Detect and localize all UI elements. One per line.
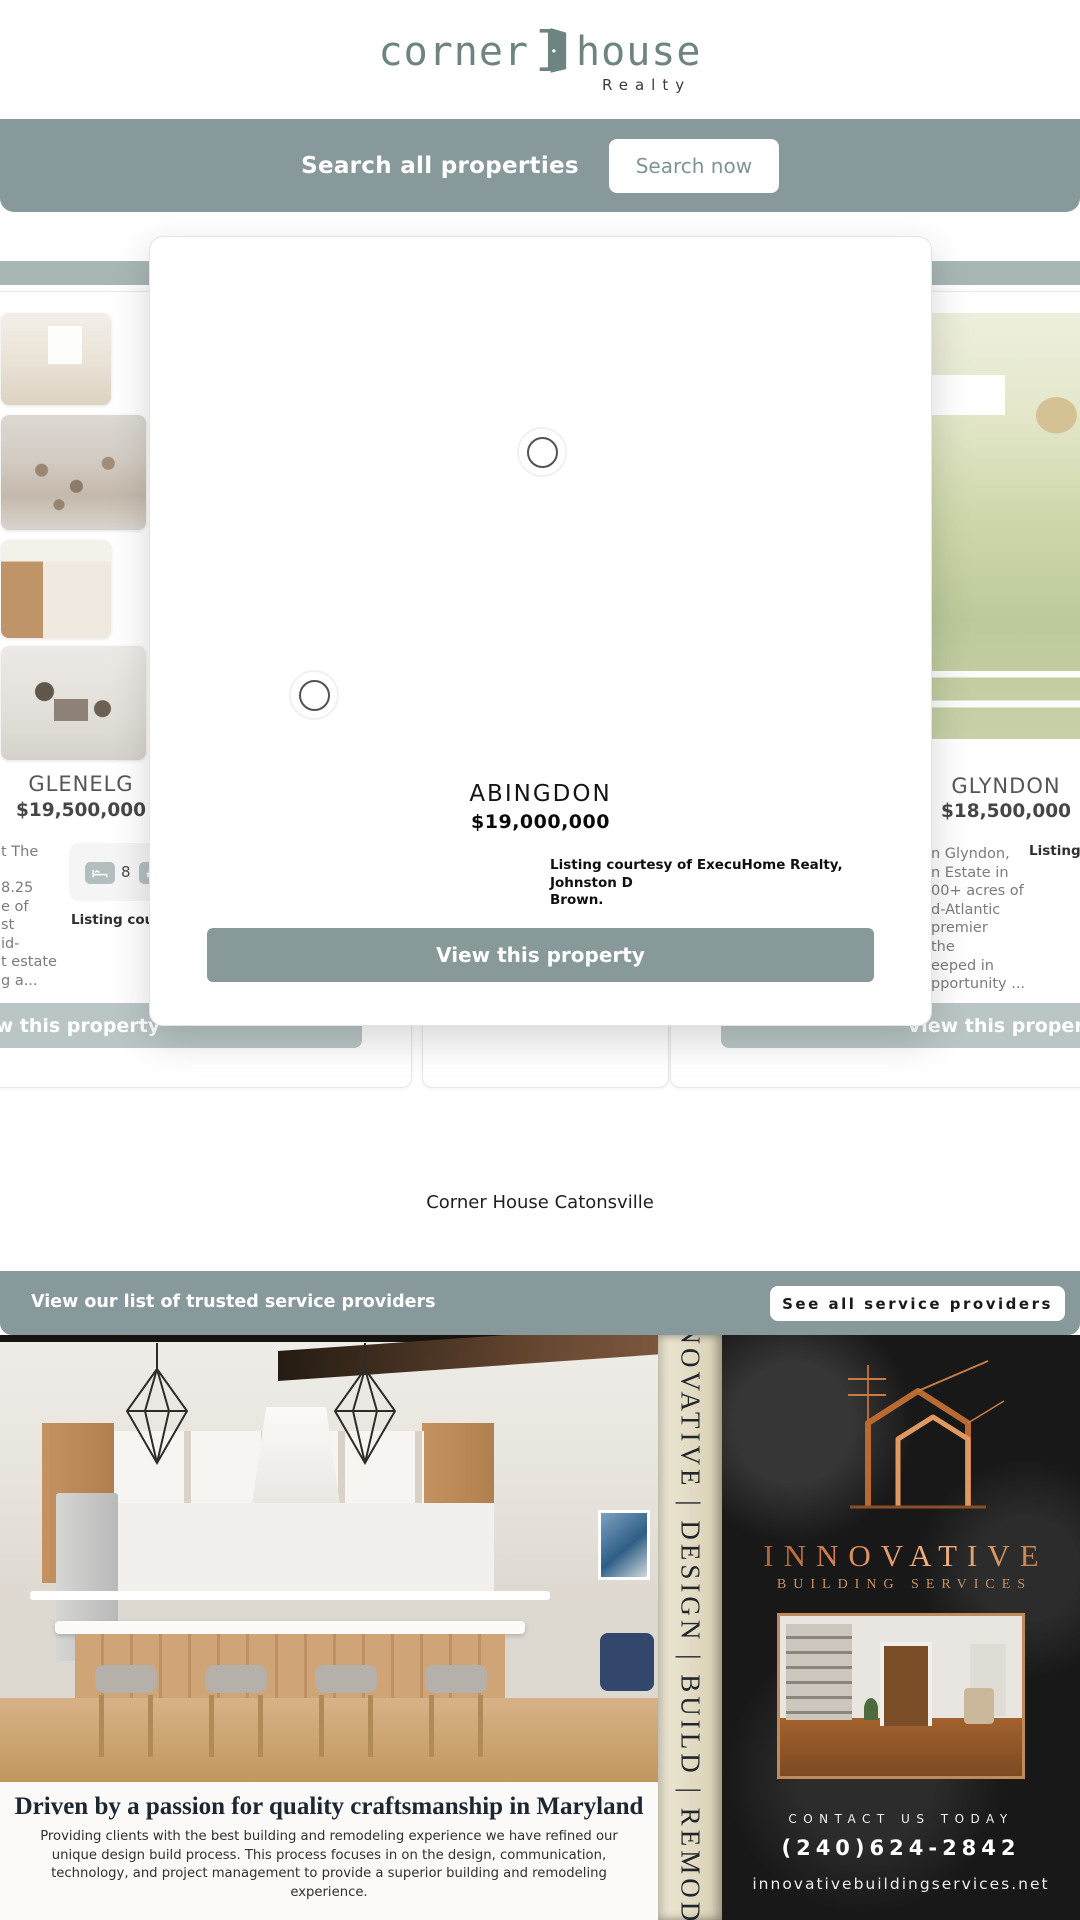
wall-art xyxy=(598,1510,650,1580)
plant xyxy=(864,1698,878,1720)
search-banner-label: Search all properties xyxy=(301,153,579,179)
logo-subtitle: Realty xyxy=(602,76,691,94)
ad-entryway-photo xyxy=(777,1613,1025,1779)
ad-vertical-banner: INNOVATIVE | DESIGN | BUILD | REMODEL xyxy=(658,1335,722,1920)
ad-body-copy: Providing clients with the best building… xyxy=(19,1828,639,1902)
brand-logo[interactable]: corner house xyxy=(0,26,1080,78)
gallery-thumbnail-aerial-winter[interactable] xyxy=(1,415,146,530)
armchair xyxy=(600,1633,654,1691)
property-description: n Glyndon, n Estate in 00+ acres of d-At… xyxy=(931,845,1025,994)
gallery-thumbnail-estate-winter[interactable] xyxy=(1,646,146,760)
see-all-providers-button[interactable]: See all service providers xyxy=(770,1286,1065,1321)
modal-listing-courtesy: Listing courtesy of ExecuHome Realty, Jo… xyxy=(550,857,872,910)
ad-contact-label: CONTACT US TODAY xyxy=(722,1812,1080,1826)
site-header: corner house Realty xyxy=(0,0,1080,119)
logo-text-corner: corner xyxy=(379,29,530,75)
search-banner: Search all properties Search now xyxy=(0,119,1080,212)
pendant-light-icon xyxy=(306,1343,424,1475)
property-description: 8.25 e of st id- t estate g a... xyxy=(1,879,57,991)
service-providers-label: View our list of trusted service provide… xyxy=(31,1292,436,1312)
listing-courtesy-note: Listing courtesy xyxy=(71,912,155,928)
modal-property-price: $19,000,000 xyxy=(150,811,931,833)
modal-property-title: ABINGDON xyxy=(150,781,931,807)
kitchen-island xyxy=(55,1621,525,1634)
loading-spinner-icon xyxy=(517,427,567,477)
property-description-line: t The xyxy=(1,843,38,862)
ad-brand-name: INNOVATIVE xyxy=(722,1538,1080,1574)
ad-website[interactable]: innovativebuildingservices.net xyxy=(722,1875,1080,1893)
logo-text-house: house xyxy=(576,29,701,75)
ad-text-block: Driven by a passion for quality craftsma… xyxy=(0,1782,658,1920)
front-door xyxy=(880,1642,932,1726)
gallery-thumbnail-bedroom[interactable] xyxy=(1,540,111,638)
ad-vertical-text: INNOVATIVE | DESIGN | BUILD | REMODEL xyxy=(675,1288,706,1920)
innovative-house-logo-icon xyxy=(786,1349,1016,1533)
property-preview-modal: ABINGDON $19,000,000 Listing courtesy of… xyxy=(149,236,932,1026)
door-icon xyxy=(537,26,568,78)
innovative-ad-panel[interactable]: INNOVATIVE BUILDING SERVICES CONTACT US … xyxy=(722,1335,1080,1920)
bar-stool xyxy=(315,1665,377,1761)
ad-brand-subtitle: BUILDING SERVICES xyxy=(722,1577,1080,1593)
staircase xyxy=(786,1624,852,1720)
search-now-button[interactable]: Search now xyxy=(609,139,779,193)
ad-kitchen-photo[interactable] xyxy=(0,1335,658,1782)
listing-courtesy-note: Listing courtesy of ... xyxy=(1029,843,1080,859)
sponsor-ad-section: Driven by a passion for quality craftsma… xyxy=(0,1335,1080,1920)
bar-stool xyxy=(95,1665,157,1761)
service-providers-banner: View our list of trusted service provide… xyxy=(0,1271,1080,1335)
page: corner house Realty Search all propertie… xyxy=(0,0,1080,1920)
ad-phone-number: (240)624-2842 xyxy=(722,1836,1080,1860)
bar-stool xyxy=(205,1665,267,1761)
beds-baths-badge: 8 xyxy=(69,843,161,901)
loading-spinner-icon xyxy=(289,670,339,720)
ad-headline: Driven by a passion for quality craftsma… xyxy=(0,1793,658,1821)
office-location-label: Corner House Catonsville xyxy=(0,1192,1080,1213)
pendant-light-icon xyxy=(98,1343,216,1475)
gallery-thumbnail-interior[interactable] xyxy=(1,313,111,405)
bed-icon xyxy=(85,862,115,884)
bar-stool xyxy=(425,1665,487,1761)
bed-count: 8 xyxy=(121,863,131,881)
view-this-property-button[interactable]: View this property xyxy=(207,928,874,982)
